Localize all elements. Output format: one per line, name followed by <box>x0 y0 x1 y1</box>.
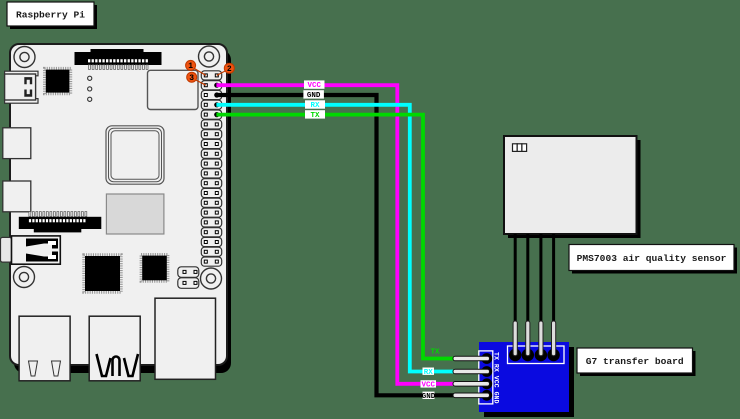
svg-text:G7 transfer board: G7 transfer board <box>586 356 684 367</box>
svg-text:GND: GND <box>422 393 436 401</box>
svg-text:Raspberry Pi: Raspberry Pi <box>16 10 85 21</box>
svg-text:TX RX VCC GND: TX RX VCC GND <box>493 352 500 403</box>
svg-text:1: 1 <box>188 62 193 71</box>
svg-text:RX: RX <box>310 102 320 110</box>
svg-text:3: 3 <box>189 74 194 83</box>
svg-text:GND: GND <box>307 92 321 100</box>
svg-text:VCC: VCC <box>421 382 435 390</box>
svg-text:VCC: VCC <box>307 82 321 90</box>
svg-text:TX: TX <box>430 349 440 357</box>
svg-text:2: 2 <box>227 65 232 74</box>
svg-text:PMS7003 air quality sensor: PMS7003 air quality sensor <box>577 253 727 264</box>
svg-text:TX: TX <box>310 112 320 120</box>
svg-text:RX: RX <box>424 369 434 377</box>
